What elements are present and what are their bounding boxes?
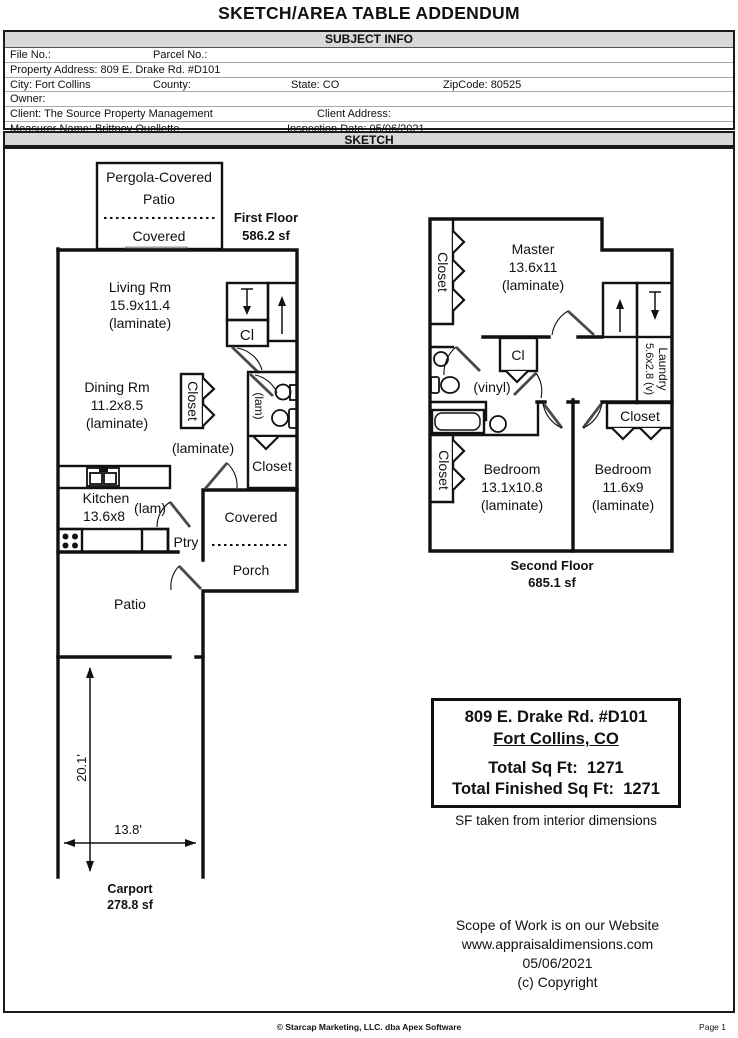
sf-note: SF taken from interior dimensions — [431, 813, 681, 828]
subject-info-table: SUBJECT INFO File No.: Parcel No.: Prope… — [3, 30, 735, 130]
summary-total-sqft: Total Sq Ft: 1271 — [434, 759, 678, 778]
subject-info-header: SUBJECT INFO — [5, 32, 733, 48]
subject-row-1: File No.: Parcel No.: — [5, 48, 733, 63]
owner-field: Owner: — [10, 93, 45, 105]
subject-row-2: Property Address: 809 E. Drake Rd. #D101 — [5, 63, 733, 78]
scope-line-4: (c) Copyright — [420, 973, 695, 992]
subject-row-4: Owner: — [5, 92, 733, 107]
summary-address-line1: 809 E. Drake Rd. #D101 — [434, 708, 678, 727]
parcel-no-field: Parcel No.: — [153, 49, 207, 61]
summary-total-finished-sqft: Total Finished Sq Ft: 1271 — [434, 780, 678, 799]
subject-row-3: City: Fort Collins County: State: CO Zip… — [5, 78, 733, 93]
footer-page-number: Page 1 — [699, 1022, 726, 1032]
property-summary-box: 809 E. Drake Rd. #D101 Fort Collins, CO … — [431, 698, 681, 808]
county-field: County: — [153, 79, 191, 91]
client-field: Client: The Source Property Management — [10, 108, 213, 120]
client-address-field: Client Address: — [317, 108, 391, 120]
footer-copyright: © Starcap Marketing, LLC. dba Apex Softw… — [0, 1022, 738, 1032]
subject-row-5: Client: The Source Property Management C… — [5, 107, 733, 122]
file-no-field: File No.: — [10, 49, 51, 61]
scope-line-2: www.appraisaldimensions.com — [420, 935, 695, 954]
page-title: SKETCH/AREA TABLE ADDENDUM — [0, 0, 738, 24]
zipcode-field: ZipCode: 80525 — [443, 79, 521, 91]
state-field: State: CO — [291, 79, 339, 91]
property-address-field: Property Address: 809 E. Drake Rd. #D101 — [10, 64, 220, 76]
scope-line-3: 05/06/2021 — [420, 954, 695, 973]
city-field: City: Fort Collins — [10, 79, 91, 91]
summary-address-line2: Fort Collins, CO — [434, 730, 678, 749]
sketch-section-header: SKETCH — [3, 131, 735, 147]
scope-line-1: Scope of Work is on our Website — [420, 916, 695, 935]
sketch-canvas — [3, 147, 735, 1013]
scope-of-work-note: Scope of Work is on our Website www.appr… — [420, 916, 695, 992]
